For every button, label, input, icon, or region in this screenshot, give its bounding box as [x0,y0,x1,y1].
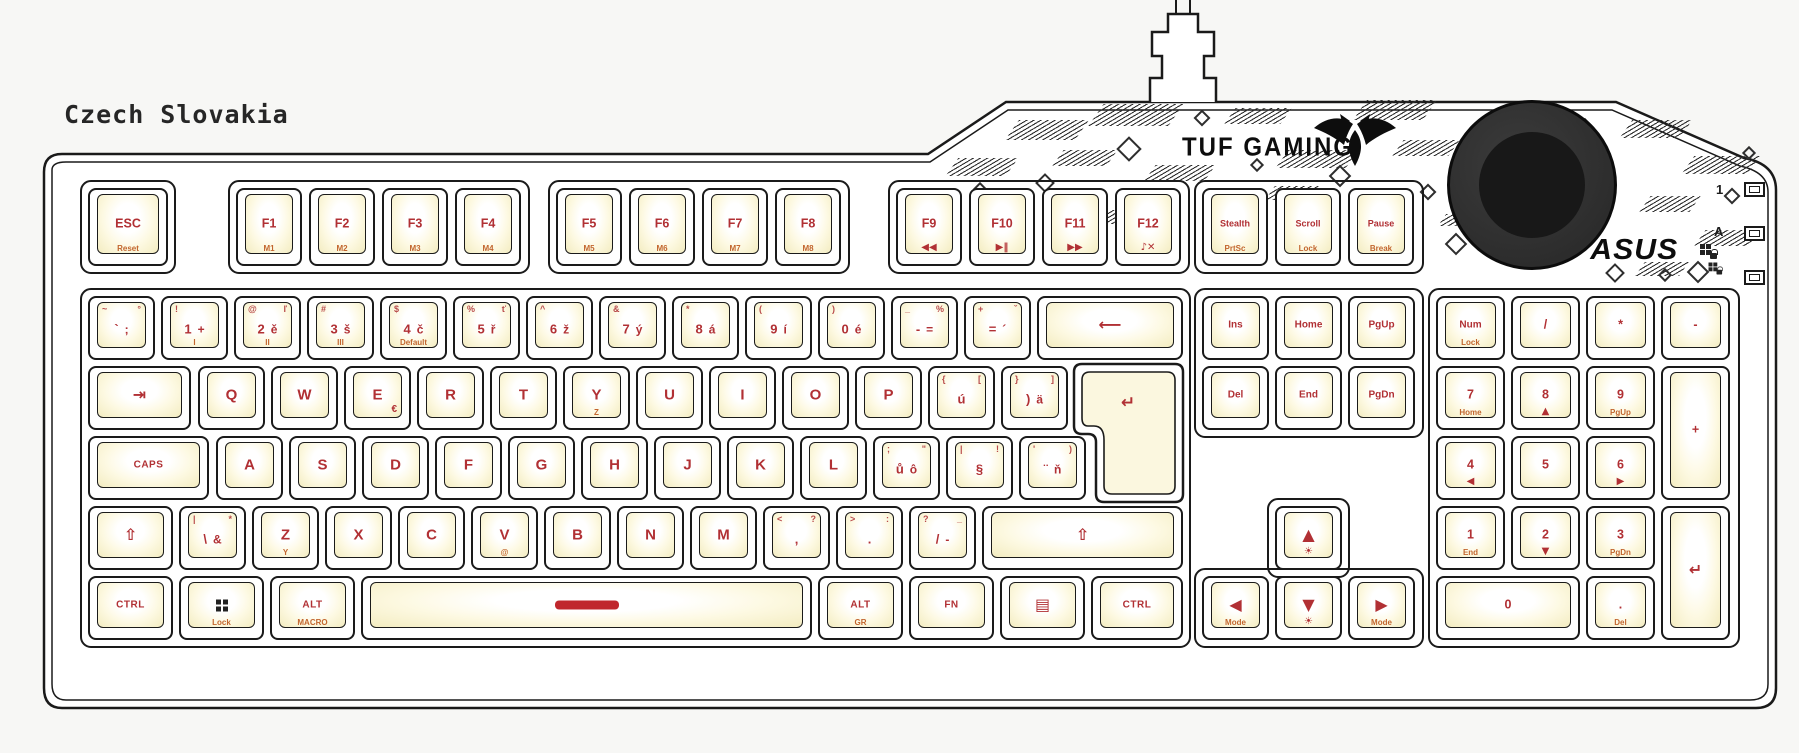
tab-icon: ⇥ [133,387,146,403]
key-enter: ↵ [1070,362,1187,504]
keycap-face: 8▲ [1520,372,1571,418]
corner-legend: ' [1033,444,1035,454]
sub-legend: PrtSc [1225,244,1246,253]
keycap-face: ~°`; [97,302,146,348]
keycap-face: M [699,512,748,558]
right-icon: ▶ [1375,597,1387,613]
key-f6: F6M6 [629,188,695,266]
main-legend: W [297,388,311,403]
keycap-face: 5 [1520,442,1571,488]
keycap-face: +ˇ=´ [973,302,1022,348]
main-legend: 0 [1505,598,1512,613]
main-legend: Pause [1368,217,1395,232]
key-alt: ALTMACRO [270,576,355,640]
keycap-face: ^6ž [535,302,584,348]
sub-legend: Del [1614,618,1626,627]
key-arrow-up: ▲☀ [1275,506,1342,570]
key-caps: CAPS [88,436,209,500]
up-icon: ▲ [1302,527,1314,543]
main-legend: End [1299,388,1318,403]
playpause-icon: ▶‖ [996,242,1009,253]
keycap-face: O [791,372,840,418]
keycap-face: - [1670,302,1721,348]
key-f1: F1M1 [236,188,302,266]
layout-title: Czech Slovakia [64,100,289,129]
corner-legend: ! [175,304,178,314]
main-legend: D [390,458,401,473]
main-legend: - [1693,318,1697,333]
secondary-legend: í [783,323,786,337]
keycap-face: H [590,442,639,488]
sun-icon: ☀ [1304,546,1313,557]
sub-legend: GR [855,618,867,627]
corner-legend: * [228,514,232,524]
keycap-face: <?, [772,512,821,558]
key-h: H [581,436,648,500]
keycap-face: CAPS [97,442,200,488]
keycap-face: W [280,372,329,418]
keycap-face: F7M7 [711,194,759,254]
main-legend: 2 [258,322,265,337]
key-f5: F5M5 [556,188,622,266]
sub-legend: Z [594,408,599,417]
keycap-face: ⟵ [1046,302,1174,348]
main-legend: Z [281,528,290,543]
main-legend: . [1619,598,1622,613]
keycap-face: %ť5ř [462,302,511,348]
corner-legend: ~ [102,304,107,314]
key-a: A [216,436,283,500]
main-legend: F8 [801,217,816,232]
key-pgup: PgUp [1348,296,1415,360]
key-i: I [709,366,776,430]
keycap-face: F3M3 [391,194,439,254]
keycap-face: J [663,442,712,488]
keycap-face: ALTGR [827,582,894,628]
secondary-legend: é [855,323,862,337]
key-np-6: 6▶ [1586,436,1655,500]
key-2: @ľ2ěII [234,296,301,360]
key-u: U [636,366,703,430]
keycap-face: FN [918,582,985,628]
keycap-face: D [371,442,420,488]
key-v: V@ [471,506,538,570]
main-legend: 0 [842,322,849,337]
key-insert: Ins [1202,296,1269,360]
keycap-face: F2M2 [318,194,366,254]
sub-legend: Lock [212,618,231,627]
main-legend: ALT [850,598,870,613]
main-legend: 3 [331,322,338,337]
backspace-icon: ⟵ [1099,317,1122,333]
secondary-legend: ř [491,323,496,337]
main-legend: CTRL [1123,598,1152,613]
main-legend: . [868,532,872,547]
key-win: Lock [179,576,264,640]
keycap-face: F12♪✕ [1124,194,1172,254]
main-legend: ESC [115,217,141,232]
sub-legend: MACRO [297,618,327,627]
secondary-legend: ý [636,323,643,337]
main-legend: I [740,388,744,403]
keycap-face: R [426,372,475,418]
keycap-face: *8á [681,302,730,348]
tuf-emblem-icon [1312,112,1398,176]
key-4: $4čDefault [380,296,447,360]
key-f11: F11▶▶ [1042,188,1108,266]
keycap-face: .Del [1595,582,1646,628]
key-bracket-right: }])ä [1001,366,1068,430]
keycap-face: F6M6 [638,194,686,254]
secondary-legend: & [213,533,222,547]
down-icon: ▼ [1302,597,1314,613]
corner-legend: $ [394,304,399,314]
keycap-face: $4čDefault [389,302,438,348]
key-end: End [1275,366,1342,430]
corner-legend: ; [887,444,890,454]
key-np-5: 5 [1511,436,1580,500]
spacebar-led-icon [555,601,619,610]
main-legend: F [464,458,473,473]
keycap-face: 6▶ [1595,442,1646,488]
main-legend: PgUp [1368,318,1394,333]
key-r: R [417,366,484,430]
key-b: B [544,506,611,570]
main-legend: Num [1459,318,1481,333]
secondary-legend: á [709,323,716,337]
keycap-face: 0 [1445,582,1571,628]
corner-legend: ^ [540,304,545,314]
key-np-0: 0 [1436,576,1580,640]
key-w: W [271,366,338,430]
keycap-face: 2▼ [1520,512,1571,558]
keycap-face: ▶Mode [1357,582,1406,628]
corner-legend: # [321,304,326,314]
keycap-face [370,582,803,628]
key-equal: +ˇ=´ [964,296,1031,360]
key-np-add: + [1661,366,1730,500]
main-legend: F3 [408,217,423,232]
corner-legend: & [613,304,620,314]
main-legend: L [829,458,838,473]
keycap-face: ⇥ [97,372,182,418]
key-grave: ~°`; [88,296,155,360]
keycap-face: ▲☀ [1284,512,1333,558]
main-legend: E [372,388,382,403]
main-legend: - [916,322,920,337]
forward-icon: ▶▶ [1067,242,1082,253]
corner-legend: | [960,444,963,454]
right-icon: ▶ [1617,476,1625,487]
win-lock-icon [1700,244,1705,249]
key-f9: F9◀◀ [896,188,962,266]
main-legend: F5 [582,217,597,232]
keycap-face: F11▶▶ [1051,194,1099,254]
sub-legend: M6 [656,244,667,253]
secondary-legend: č [417,323,424,337]
keycap-face: 7Home [1445,372,1496,418]
main-legend: N [645,528,656,543]
shift-icon: ⇧ [1076,527,1089,543]
key-p: P [855,366,922,430]
main-legend: \ [203,532,207,547]
sub-legend: Home [1459,408,1481,417]
sub-legend: Lock [1299,244,1318,253]
keycap-face: F5M5 [565,194,613,254]
key-np-subtract: - [1661,296,1730,360]
secondary-legend: - [945,533,949,547]
keycap-face: ScrollLock [1284,194,1332,254]
key-d: D [362,436,429,500]
main-legend: 5 [1542,458,1549,473]
sub-legend: Mode [1371,618,1392,627]
keycap-face: ESCReset [97,194,159,254]
corner-legend: ľ [284,304,287,314]
main-legend: F6 [655,217,670,232]
main-legend: S [317,458,327,473]
main-legend: 7 [1467,388,1474,403]
keycap-face: Q [207,372,256,418]
keycap-face: ALTMACRO [279,582,346,628]
mute-icon: ♪✕ [1141,242,1156,253]
sub-legend: M8 [802,244,813,253]
sub-legend: M1 [263,244,274,253]
corner-legend: } [1015,374,1019,384]
main-legend: 4 [1467,458,1474,473]
main-legend: 6 [1617,458,1624,473]
corner-legend: _ [957,514,962,524]
key-k: K [727,436,794,500]
key-f10: F10▶‖ [969,188,1035,266]
main-legend: Stealth [1220,217,1250,232]
keycap-face: F1M1 [245,194,293,254]
key-altgr: ALTGR [818,576,903,640]
corner-legend: < [777,514,782,524]
key-fn: FN [909,576,994,640]
numlock-led [1744,182,1765,197]
sub-legend: M5 [583,244,594,253]
main-legend: 9 [770,322,777,337]
main-legend: PgDn [1368,388,1394,403]
main-legend: 9 [1617,388,1624,403]
sub-legend: PgUp [1610,408,1631,417]
corner-legend: | [193,514,196,524]
sub-legend: PgDn [1610,548,1631,557]
main-legend: O [810,388,822,403]
keycap-face: NumLock [1445,302,1496,348]
sub-legend: III [337,338,344,347]
main-legend: F4 [481,217,496,232]
keycap-face: K [736,442,785,488]
key-c: C [398,506,465,570]
secondary-legend: = [926,323,933,337]
sub-legend: II [265,338,269,347]
main-legend: V [499,528,509,543]
main-legend: ) [1026,392,1030,407]
sub-legend: M3 [409,244,420,253]
corner-legend: ˇ [1014,304,1017,314]
sub-legend: Y [283,548,288,557]
corner-legend: % [467,304,475,314]
keycap-face: @ľ2ěII [243,302,292,348]
down-icon: ▼ [1542,546,1550,557]
main-legend: 6 [550,322,557,337]
main-legend: = [989,322,997,337]
capslock-led [1744,226,1765,241]
main-legend: H [609,458,620,473]
keycap-face: F9◀◀ [905,194,953,254]
key-prtsc: StealthPrtSc [1202,188,1268,266]
corner-legend: ) [832,304,835,314]
key-8: *8á [672,296,739,360]
key-comma: <?, [763,506,830,570]
key-shift-right: ⇧ [982,506,1183,570]
keycap-face: F8M8 [784,194,832,254]
key-f12: F12♪✕ [1115,188,1181,266]
corner-legend: @ [248,304,257,314]
key-quote: ;"ůô [873,436,940,500]
winlock-led [1744,270,1765,285]
main-legend: Q [226,388,238,403]
key-arrow-left: ◀Mode [1202,576,1269,640]
keycap-face: ▤ [1009,582,1076,628]
key-np-2: 2▼ [1511,506,1580,570]
key-space [361,576,812,640]
corner-legend: { [942,374,946,384]
key-j: J [654,436,721,500]
numlock-indicator-label: 1 [1716,182,1723,197]
key-f3: F3M3 [382,188,448,266]
key-s: S [289,436,356,500]
key-9: (9í [745,296,812,360]
corner-legend: ( [759,304,762,314]
main-legend: ALT [302,598,322,613]
menu-icon: ▤ [1035,597,1050,613]
keycap-face: CTRL [97,582,164,628]
keycap-face: I [718,372,767,418]
main-legend: ¨ [1044,462,1048,477]
key-bracket-left: {[ú [928,366,995,430]
asus-logo-text: ASUS [1590,234,1678,267]
main-legend: X [353,528,363,543]
key-minus: _%-= [891,296,958,360]
keycap-face: CTRL [1100,582,1174,628]
keycap-face: (9í [754,302,803,348]
corner-legend: + [978,304,983,314]
bottom-right-legend: € [391,404,397,415]
main-legend: Ins [1228,318,1242,333]
main-legend: F1 [262,217,277,232]
key-z: ZY [252,506,319,570]
secondary-legend: + [198,323,205,337]
keycap-face: P [864,372,913,418]
main-legend: 2 [1542,528,1549,543]
key-e: E€ [344,366,411,430]
main-legend: F7 [728,217,743,232]
sub-legend: I [193,338,195,347]
key-delete: Del [1202,366,1269,430]
main-legend: M [717,528,730,543]
keycap-face: F4M4 [464,194,512,254]
key-paragraph: |!§ [946,436,1013,500]
keycap-face: !1+I [170,302,219,348]
left-icon: ◀ [1467,476,1475,487]
sub-legend: Break [1370,244,1392,253]
corner-legend: * [686,304,690,314]
keycap-face: G [517,442,566,488]
key-np-multiply: * [1586,296,1655,360]
key-1: !1+I [161,296,228,360]
keycap-face: PgUp [1357,302,1406,348]
secondary-legend: ´ [1002,323,1006,337]
key-f7: F7M7 [702,188,768,266]
main-legend: , [795,532,799,547]
key-scrlk: ScrollLock [1275,188,1341,266]
key-o: O [782,366,849,430]
corner-legend: ° [137,304,141,314]
main-legend: / [936,532,940,547]
keycap-face: PauseBreak [1357,194,1405,254]
keycap-face: T [499,372,548,418]
main-legend: T [519,388,528,403]
key-0: )0é [818,296,885,360]
key-np-4: 4◀ [1436,436,1505,500]
sub-legend: Mode [1225,618,1246,627]
main-legend: B [572,528,583,543]
keycap-face: A [225,442,274,488]
keycap-face: )0é [827,302,876,348]
main-legend: FN [944,598,958,613]
main-legend: F11 [1065,217,1086,232]
key-arrow-right: ▶Mode [1348,576,1415,640]
secondary-legend: ä [1036,393,1043,407]
main-legend: CAPS [134,458,164,473]
main-legend: J [683,458,691,473]
key-pgdn: PgDn [1348,366,1415,430]
main-legend: 1 [184,322,191,337]
main-legend: 5 [478,322,485,337]
keycap-face: ⇧ [991,512,1174,558]
keycap-face: End [1284,372,1333,418]
keycap-face: |!§ [955,442,1004,488]
main-legend: 1 [1467,528,1474,543]
main-legend: + [1692,423,1699,438]
left-icon: ◀ [1229,597,1241,613]
secondary-legend: ž [563,323,569,337]
up-icon: ▲ [1542,406,1550,417]
key-arrow-down: ▼☀ [1275,576,1342,640]
key-ctrl-left: CTRL [88,576,173,640]
main-legend: 8 [696,322,703,337]
secondary-legend: ň [1054,463,1061,477]
main-legend: G [536,458,548,473]
corner-legend: : [886,514,889,524]
keycap-face: ↵ [1670,512,1721,628]
main-legend: F2 [335,217,350,232]
key-slash: ?_/- [909,506,976,570]
sub-legend: M4 [482,244,493,253]
key-f2: F2M2 [309,188,375,266]
main-legend: Del [1228,388,1244,403]
shift-icon: ⇧ [124,527,137,543]
corner-legend: ? [923,514,929,524]
main-legend: 3 [1617,528,1624,543]
keycap-face: 9PgUp [1595,372,1646,418]
sub-legend: Reset [117,244,139,253]
key-f4: F4M4 [455,188,521,266]
main-legend: ú [958,392,966,407]
winlock-indicator-icon [1709,263,1713,267]
